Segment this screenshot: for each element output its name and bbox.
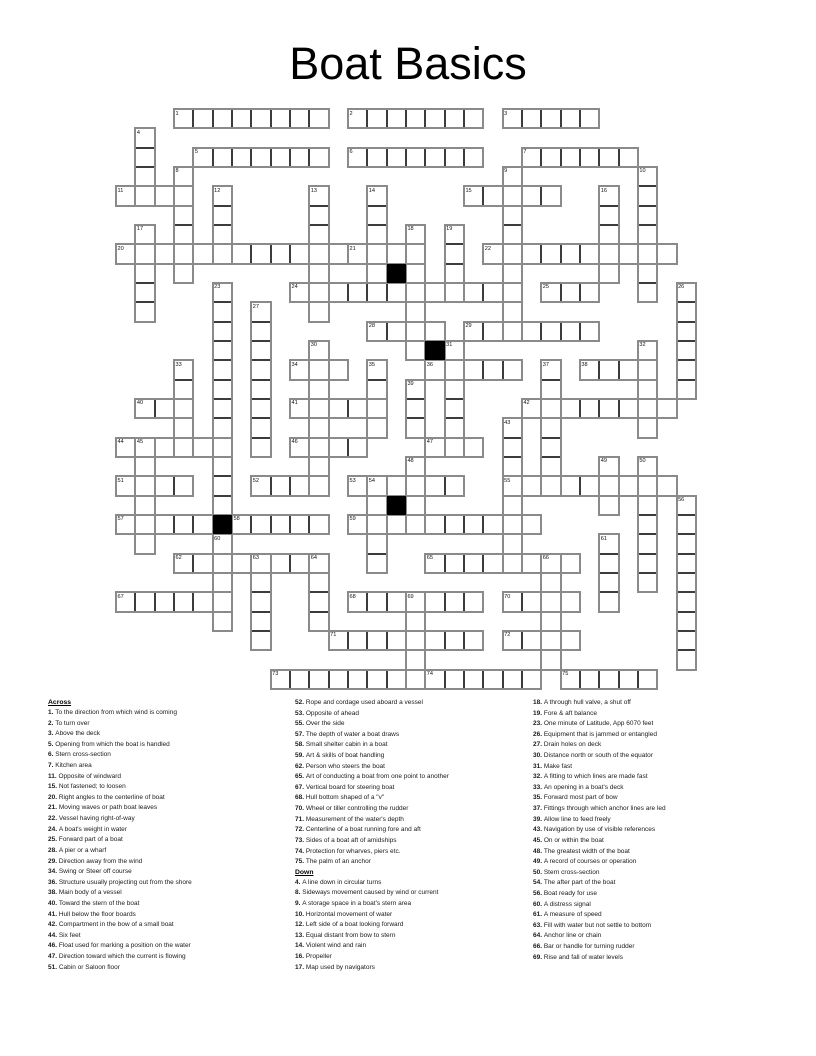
grid-cell[interactable] bbox=[677, 612, 696, 631]
grid-cell[interactable] bbox=[541, 283, 560, 302]
grid-cell[interactable] bbox=[348, 670, 367, 689]
grid-cell[interactable] bbox=[251, 438, 270, 457]
grid-cell[interactable] bbox=[155, 399, 174, 418]
grid-cell[interactable] bbox=[387, 244, 406, 263]
grid-cell[interactable] bbox=[425, 360, 444, 379]
grid-cell[interactable] bbox=[580, 322, 599, 341]
grid-cell[interactable] bbox=[135, 515, 154, 534]
grid-cell[interactable] bbox=[541, 380, 560, 399]
grid-cell[interactable] bbox=[638, 573, 657, 592]
grid-cell[interactable] bbox=[232, 515, 251, 534]
grid-cell[interactable] bbox=[406, 476, 425, 495]
grid-cell[interactable] bbox=[638, 670, 657, 689]
grid-cell[interactable] bbox=[619, 476, 638, 495]
grid-cell[interactable] bbox=[561, 554, 580, 573]
grid-cell[interactable] bbox=[638, 515, 657, 534]
grid-cell[interactable] bbox=[425, 148, 444, 167]
grid-cell[interactable] bbox=[464, 515, 483, 534]
grid-cell[interactable] bbox=[367, 360, 386, 379]
grid-cell[interactable] bbox=[213, 592, 232, 611]
grid-cell[interactable] bbox=[213, 476, 232, 495]
grid-cell[interactable] bbox=[155, 515, 174, 534]
grid-cell[interactable] bbox=[503, 592, 522, 611]
grid-cell[interactable] bbox=[193, 592, 212, 611]
grid-cell[interactable] bbox=[425, 283, 444, 302]
grid-cell[interactable] bbox=[290, 109, 309, 128]
grid-cell[interactable] bbox=[329, 670, 348, 689]
grid-cell[interactable] bbox=[561, 670, 580, 689]
grid-cell[interactable] bbox=[348, 592, 367, 611]
grid-cell[interactable] bbox=[387, 322, 406, 341]
grid-cell[interactable] bbox=[638, 554, 657, 573]
grid-cell[interactable] bbox=[677, 554, 696, 573]
grid-cell[interactable] bbox=[599, 592, 618, 611]
grid-cell[interactable] bbox=[174, 244, 193, 263]
grid-cell[interactable] bbox=[116, 592, 135, 611]
grid-cell[interactable] bbox=[251, 554, 270, 573]
grid-cell[interactable] bbox=[445, 360, 464, 379]
grid-cell[interactable] bbox=[251, 148, 270, 167]
grid-cell[interactable] bbox=[406, 612, 425, 631]
grid-cell[interactable] bbox=[561, 322, 580, 341]
grid-cell[interactable] bbox=[309, 573, 328, 592]
grid-cell[interactable] bbox=[271, 554, 290, 573]
grid-cell[interactable] bbox=[503, 457, 522, 476]
grid-cell[interactable] bbox=[425, 554, 444, 573]
grid-cell[interactable] bbox=[503, 476, 522, 495]
grid-cell[interactable] bbox=[580, 244, 599, 263]
grid-cell[interactable] bbox=[348, 438, 367, 457]
grid-cell[interactable] bbox=[503, 554, 522, 573]
grid-cell[interactable] bbox=[522, 670, 541, 689]
grid-cell[interactable] bbox=[503, 515, 522, 534]
grid-cell[interactable] bbox=[309, 109, 328, 128]
grid-cell[interactable] bbox=[445, 554, 464, 573]
grid-cell[interactable] bbox=[599, 225, 618, 244]
grid-cell[interactable] bbox=[271, 109, 290, 128]
grid-cell[interactable] bbox=[135, 148, 154, 167]
grid-cell[interactable] bbox=[425, 515, 444, 534]
grid-cell[interactable] bbox=[174, 554, 193, 573]
grid-cell[interactable] bbox=[599, 476, 618, 495]
grid-cell[interactable] bbox=[638, 534, 657, 553]
grid-cell[interactable] bbox=[541, 554, 560, 573]
grid-cell[interactable] bbox=[135, 496, 154, 515]
grid-cell[interactable] bbox=[348, 244, 367, 263]
grid-cell[interactable] bbox=[174, 380, 193, 399]
grid-cell[interactable] bbox=[599, 670, 618, 689]
grid-cell[interactable] bbox=[251, 341, 270, 360]
grid-cell[interactable] bbox=[135, 534, 154, 553]
grid-cell[interactable] bbox=[329, 283, 348, 302]
grid-cell[interactable] bbox=[445, 380, 464, 399]
grid-cell[interactable] bbox=[213, 283, 232, 302]
grid-cell[interactable] bbox=[580, 148, 599, 167]
grid-cell[interactable] bbox=[503, 631, 522, 650]
grid-cell[interactable] bbox=[677, 496, 696, 515]
grid-cell[interactable] bbox=[232, 109, 251, 128]
grid-cell[interactable] bbox=[135, 244, 154, 263]
grid-cell[interactable] bbox=[309, 148, 328, 167]
grid-cell[interactable] bbox=[522, 592, 541, 611]
grid-cell[interactable] bbox=[232, 554, 251, 573]
grid-cell[interactable] bbox=[677, 360, 696, 379]
grid-cell[interactable] bbox=[503, 418, 522, 437]
grid-cell[interactable] bbox=[483, 360, 502, 379]
grid-cell[interactable] bbox=[677, 573, 696, 592]
grid-cell[interactable] bbox=[290, 438, 309, 457]
grid-cell[interactable] bbox=[251, 109, 270, 128]
grid-cell[interactable] bbox=[387, 515, 406, 534]
grid-cell[interactable] bbox=[290, 670, 309, 689]
grid-cell[interactable] bbox=[638, 283, 657, 302]
grid-cell[interactable] bbox=[445, 670, 464, 689]
grid-cell[interactable] bbox=[367, 476, 386, 495]
grid-cell[interactable] bbox=[309, 244, 328, 263]
grid-cell[interactable] bbox=[406, 244, 425, 263]
grid-cell[interactable] bbox=[503, 167, 522, 186]
grid-cell[interactable] bbox=[541, 186, 560, 205]
grid-cell[interactable] bbox=[541, 631, 560, 650]
grid-cell[interactable] bbox=[406, 631, 425, 650]
grid-cell[interactable] bbox=[464, 283, 483, 302]
grid-cell[interactable] bbox=[677, 592, 696, 611]
grid-cell[interactable] bbox=[445, 109, 464, 128]
grid-cell[interactable] bbox=[464, 592, 483, 611]
grid-cell[interactable] bbox=[193, 438, 212, 457]
grid-cell[interactable] bbox=[638, 418, 657, 437]
grid-cell[interactable] bbox=[213, 380, 232, 399]
grid-cell[interactable] bbox=[638, 476, 657, 495]
grid-cell[interactable] bbox=[503, 670, 522, 689]
grid-cell[interactable] bbox=[135, 167, 154, 186]
grid-cell[interactable] bbox=[367, 592, 386, 611]
grid-cell[interactable] bbox=[213, 534, 232, 553]
grid-cell[interactable] bbox=[638, 457, 657, 476]
grid-cell[interactable] bbox=[329, 399, 348, 418]
grid-cell[interactable] bbox=[464, 109, 483, 128]
grid-cell[interactable] bbox=[155, 592, 174, 611]
grid-cell[interactable] bbox=[367, 399, 386, 418]
grid-cell[interactable] bbox=[541, 438, 560, 457]
grid-cell[interactable] bbox=[309, 264, 328, 283]
grid-cell[interactable] bbox=[174, 264, 193, 283]
grid-cell[interactable] bbox=[174, 360, 193, 379]
grid-cell[interactable] bbox=[213, 554, 232, 573]
grid-cell[interactable] bbox=[135, 283, 154, 302]
grid-cell[interactable] bbox=[483, 670, 502, 689]
grid-cell[interactable] bbox=[271, 476, 290, 495]
grid-cell[interactable] bbox=[251, 515, 270, 534]
grid-cell[interactable] bbox=[638, 167, 657, 186]
grid-cell[interactable] bbox=[406, 283, 425, 302]
grid-cell[interactable] bbox=[425, 109, 444, 128]
grid-cell[interactable] bbox=[599, 534, 618, 553]
grid-cell[interactable] bbox=[561, 631, 580, 650]
grid-cell[interactable] bbox=[464, 554, 483, 573]
grid-cell[interactable] bbox=[619, 148, 638, 167]
grid-cell[interactable] bbox=[541, 109, 560, 128]
grid-cell[interactable] bbox=[445, 476, 464, 495]
grid-cell[interactable] bbox=[561, 109, 580, 128]
grid-cell[interactable] bbox=[251, 322, 270, 341]
grid-cell[interactable] bbox=[580, 109, 599, 128]
grid-cell[interactable] bbox=[213, 418, 232, 437]
grid-cell[interactable] bbox=[541, 457, 560, 476]
grid-cell[interactable] bbox=[483, 322, 502, 341]
grid-cell[interactable] bbox=[213, 341, 232, 360]
grid-cell[interactable] bbox=[503, 496, 522, 515]
grid-cell[interactable] bbox=[251, 302, 270, 321]
grid-cell[interactable] bbox=[541, 418, 560, 437]
grid-cell[interactable] bbox=[541, 650, 560, 669]
grid-cell[interactable] bbox=[251, 244, 270, 263]
grid-cell[interactable] bbox=[503, 534, 522, 553]
grid-cell[interactable] bbox=[367, 554, 386, 573]
grid-cell[interactable] bbox=[677, 631, 696, 650]
grid-cell[interactable] bbox=[348, 476, 367, 495]
grid-cell[interactable] bbox=[580, 670, 599, 689]
grid-cell[interactable] bbox=[406, 380, 425, 399]
grid-cell[interactable] bbox=[309, 341, 328, 360]
grid-cell[interactable] bbox=[367, 631, 386, 650]
grid-cell[interactable] bbox=[677, 322, 696, 341]
grid-cell[interactable] bbox=[406, 399, 425, 418]
grid-cell[interactable] bbox=[135, 264, 154, 283]
grid-cell[interactable] bbox=[387, 592, 406, 611]
grid-cell[interactable] bbox=[387, 476, 406, 495]
grid-cell[interactable] bbox=[599, 148, 618, 167]
grid-cell[interactable] bbox=[271, 244, 290, 263]
grid-cell[interactable] bbox=[193, 148, 212, 167]
grid-cell[interactable] bbox=[348, 515, 367, 534]
grid-cell[interactable] bbox=[425, 476, 444, 495]
grid-cell[interactable] bbox=[251, 380, 270, 399]
grid-cell[interactable] bbox=[309, 399, 328, 418]
grid-cell[interactable] bbox=[309, 670, 328, 689]
grid-cell[interactable] bbox=[135, 399, 154, 418]
grid-cell[interactable] bbox=[213, 322, 232, 341]
grid-cell[interactable] bbox=[309, 225, 328, 244]
grid-cell[interactable] bbox=[522, 399, 541, 418]
grid-cell[interactable] bbox=[290, 399, 309, 418]
grid-cell[interactable] bbox=[657, 244, 676, 263]
grid-cell[interactable] bbox=[638, 341, 657, 360]
grid-cell[interactable] bbox=[425, 438, 444, 457]
grid-cell[interactable] bbox=[309, 206, 328, 225]
grid-cell[interactable] bbox=[213, 206, 232, 225]
grid-cell[interactable] bbox=[290, 476, 309, 495]
grid-cell[interactable] bbox=[599, 360, 618, 379]
grid-cell[interactable] bbox=[271, 670, 290, 689]
grid-cell[interactable] bbox=[503, 322, 522, 341]
grid-cell[interactable] bbox=[503, 206, 522, 225]
grid-cell[interactable] bbox=[174, 225, 193, 244]
grid-cell[interactable] bbox=[309, 592, 328, 611]
grid-cell[interactable] bbox=[503, 186, 522, 205]
grid-cell[interactable] bbox=[541, 592, 560, 611]
grid-cell[interactable] bbox=[406, 225, 425, 244]
grid-cell[interactable] bbox=[561, 476, 580, 495]
grid-cell[interactable] bbox=[290, 283, 309, 302]
grid-cell[interactable] bbox=[174, 438, 193, 457]
grid-cell[interactable] bbox=[677, 515, 696, 534]
grid-cell[interactable] bbox=[619, 399, 638, 418]
grid-cell[interactable] bbox=[135, 128, 154, 147]
grid-cell[interactable] bbox=[367, 283, 386, 302]
grid-cell[interactable] bbox=[541, 476, 560, 495]
grid-cell[interactable] bbox=[387, 109, 406, 128]
grid-cell[interactable] bbox=[445, 148, 464, 167]
grid-cell[interactable] bbox=[135, 592, 154, 611]
grid-cell[interactable] bbox=[135, 476, 154, 495]
grid-cell[interactable] bbox=[155, 476, 174, 495]
grid-cell[interactable] bbox=[135, 457, 154, 476]
grid-cell[interactable] bbox=[387, 283, 406, 302]
grid-cell[interactable] bbox=[445, 225, 464, 244]
grid-cell[interactable] bbox=[503, 264, 522, 283]
grid-cell[interactable] bbox=[522, 515, 541, 534]
grid-cell[interactable] bbox=[503, 109, 522, 128]
grid-cell[interactable] bbox=[677, 341, 696, 360]
grid-cell[interactable] bbox=[599, 554, 618, 573]
grid-cell[interactable] bbox=[174, 515, 193, 534]
grid-cell[interactable] bbox=[174, 418, 193, 437]
grid-cell[interactable] bbox=[503, 360, 522, 379]
grid-cell[interactable] bbox=[116, 438, 135, 457]
grid-cell[interactable] bbox=[406, 302, 425, 321]
grid-cell[interactable] bbox=[406, 322, 425, 341]
grid-cell[interactable] bbox=[445, 399, 464, 418]
grid-cell[interactable] bbox=[406, 109, 425, 128]
grid-cell[interactable] bbox=[329, 244, 348, 263]
grid-cell[interactable] bbox=[406, 418, 425, 437]
grid-cell[interactable] bbox=[155, 186, 174, 205]
grid-cell[interactable] bbox=[483, 515, 502, 534]
grid-cell[interactable] bbox=[406, 592, 425, 611]
grid-cell[interactable] bbox=[561, 244, 580, 263]
grid-cell[interactable] bbox=[541, 399, 560, 418]
grid-cell[interactable] bbox=[387, 631, 406, 650]
grid-cell[interactable] bbox=[580, 283, 599, 302]
grid-cell[interactable] bbox=[174, 592, 193, 611]
grid-cell[interactable] bbox=[213, 225, 232, 244]
grid-cell[interactable] bbox=[425, 322, 444, 341]
grid-cell[interactable] bbox=[367, 244, 386, 263]
grid-cell[interactable] bbox=[251, 418, 270, 437]
grid-cell[interactable] bbox=[599, 244, 618, 263]
grid-cell[interactable] bbox=[367, 186, 386, 205]
grid-cell[interactable] bbox=[213, 244, 232, 263]
grid-cell[interactable] bbox=[483, 186, 502, 205]
grid-cell[interactable] bbox=[599, 457, 618, 476]
grid-cell[interactable] bbox=[406, 264, 425, 283]
grid-cell[interactable] bbox=[309, 418, 328, 437]
grid-cell[interactable] bbox=[483, 244, 502, 263]
grid-cell[interactable] bbox=[232, 148, 251, 167]
grid-cell[interactable] bbox=[174, 399, 193, 418]
grid-cell[interactable] bbox=[638, 380, 657, 399]
grid-cell[interactable] bbox=[367, 418, 386, 437]
grid-cell[interactable] bbox=[522, 476, 541, 495]
grid-cell[interactable] bbox=[406, 670, 425, 689]
grid-cell[interactable] bbox=[348, 148, 367, 167]
grid-cell[interactable] bbox=[445, 244, 464, 263]
grid-cell[interactable] bbox=[483, 554, 502, 573]
grid-cell[interactable] bbox=[638, 186, 657, 205]
grid-cell[interactable] bbox=[406, 650, 425, 669]
grid-cell[interactable] bbox=[367, 534, 386, 553]
grid-cell[interactable] bbox=[251, 476, 270, 495]
grid-cell[interactable] bbox=[599, 573, 618, 592]
grid-cell[interactable] bbox=[541, 148, 560, 167]
grid-cell[interactable] bbox=[309, 457, 328, 476]
grid-cell[interactable] bbox=[174, 109, 193, 128]
grid-cell[interactable] bbox=[193, 515, 212, 534]
grid-cell[interactable] bbox=[503, 438, 522, 457]
grid-cell[interactable] bbox=[348, 109, 367, 128]
grid-cell[interactable] bbox=[638, 496, 657, 515]
grid-cell[interactable] bbox=[213, 186, 232, 205]
grid-cell[interactable] bbox=[599, 206, 618, 225]
grid-cell[interactable] bbox=[367, 515, 386, 534]
grid-cell[interactable] bbox=[329, 438, 348, 457]
grid-cell[interactable] bbox=[387, 148, 406, 167]
grid-cell[interactable] bbox=[213, 109, 232, 128]
grid-cell[interactable] bbox=[657, 476, 676, 495]
grid-cell[interactable] bbox=[522, 148, 541, 167]
grid-cell[interactable] bbox=[406, 148, 425, 167]
grid-cell[interactable] bbox=[541, 244, 560, 263]
grid-cell[interactable] bbox=[406, 341, 425, 360]
grid-cell[interactable] bbox=[155, 244, 174, 263]
grid-cell[interactable] bbox=[657, 399, 676, 418]
grid-cell[interactable] bbox=[619, 244, 638, 263]
grid-cell[interactable] bbox=[348, 631, 367, 650]
grid-cell[interactable] bbox=[638, 399, 657, 418]
grid-cell[interactable] bbox=[464, 186, 483, 205]
grid-cell[interactable] bbox=[309, 476, 328, 495]
grid-cell[interactable] bbox=[503, 283, 522, 302]
grid-cell[interactable] bbox=[445, 592, 464, 611]
grid-cell[interactable] bbox=[599, 264, 618, 283]
grid-cell[interactable] bbox=[309, 186, 328, 205]
grid-cell[interactable] bbox=[174, 186, 193, 205]
grid-cell[interactable] bbox=[638, 264, 657, 283]
grid-cell[interactable] bbox=[425, 592, 444, 611]
grid-cell[interactable] bbox=[425, 670, 444, 689]
grid-cell[interactable] bbox=[406, 496, 425, 515]
grid-cell[interactable] bbox=[522, 554, 541, 573]
grid-cell[interactable] bbox=[445, 264, 464, 283]
grid-cell[interactable] bbox=[367, 670, 386, 689]
grid-cell[interactable] bbox=[309, 360, 328, 379]
grid-cell[interactable] bbox=[174, 476, 193, 495]
grid-cell[interactable] bbox=[290, 244, 309, 263]
grid-cell[interactable] bbox=[464, 148, 483, 167]
grid-cell[interactable] bbox=[309, 438, 328, 457]
grid-cell[interactable] bbox=[213, 148, 232, 167]
grid-cell[interactable] bbox=[213, 360, 232, 379]
grid-cell[interactable] bbox=[406, 515, 425, 534]
grid-cell[interactable] bbox=[116, 515, 135, 534]
grid-cell[interactable] bbox=[541, 573, 560, 592]
grid-cell[interactable] bbox=[638, 360, 657, 379]
grid-cell[interactable] bbox=[367, 148, 386, 167]
grid-cell[interactable] bbox=[638, 225, 657, 244]
grid-cell[interactable] bbox=[445, 341, 464, 360]
grid-cell[interactable] bbox=[599, 186, 618, 205]
